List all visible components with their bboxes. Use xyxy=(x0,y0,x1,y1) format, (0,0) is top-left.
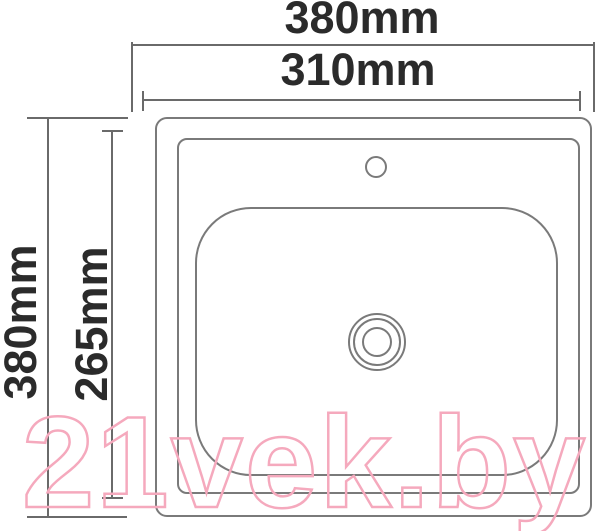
top-inner-width-right-tick xyxy=(579,91,581,111)
left-inner-height-bottom-tick xyxy=(102,497,123,499)
left-outer-height-dimension-line xyxy=(47,118,49,517)
top-outer-width-left-tick xyxy=(131,42,133,112)
sink-dimension-diagram: 380mm 310mm 380mm 265mm 21vek.by xyxy=(0,0,600,531)
left-inner-height-dimension-line xyxy=(111,131,113,498)
top-inner-width-label: 310mm xyxy=(258,49,458,91)
top-outer-width-right-tick xyxy=(593,42,595,112)
top-inner-width-left-tick xyxy=(142,91,144,111)
left-outer-height-label: 380mm xyxy=(0,222,42,422)
left-inner-height-top-tick xyxy=(102,130,123,132)
top-inner-width-dimension-line xyxy=(143,99,580,101)
left-inner-height-label: 265mm xyxy=(71,224,113,424)
faucet-hole-icon xyxy=(365,156,387,178)
left-outer-height-bottom-tick xyxy=(27,516,127,518)
drain-hole-icon xyxy=(362,327,392,357)
top-outer-width-label: 380mm xyxy=(262,0,462,39)
left-outer-height-top-tick xyxy=(27,117,128,119)
